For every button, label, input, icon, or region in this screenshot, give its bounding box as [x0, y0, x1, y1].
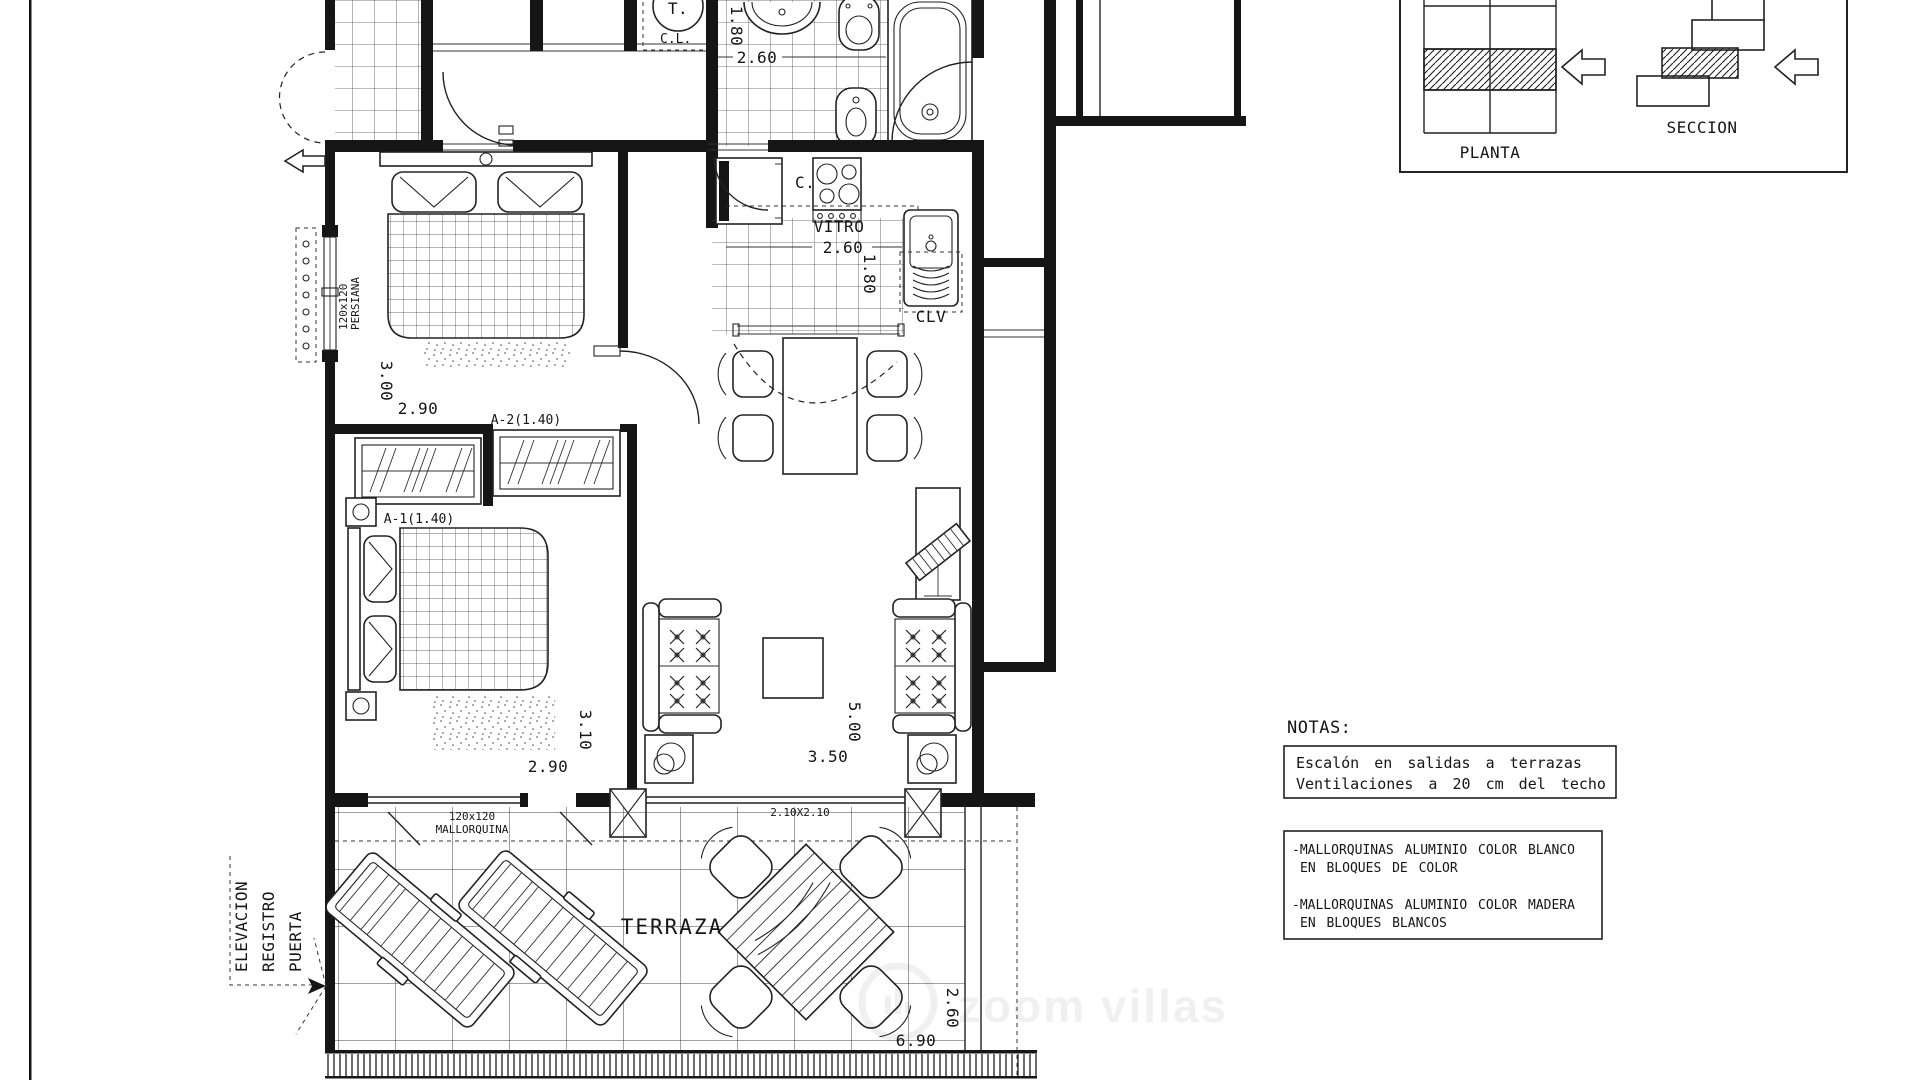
sofa-icon	[893, 599, 971, 733]
wardrobe-a2-label: A-2(1.40)	[491, 413, 561, 428]
watermark-text: zoom villas	[958, 980, 1228, 1032]
tv-console-icon	[906, 488, 970, 600]
wardrobe-a1-label: A-1(1.40)	[384, 512, 454, 527]
dim-living-width: 3.50	[808, 747, 849, 766]
dining-set-icon	[718, 338, 922, 474]
dim-kitchen-width: 2.60	[823, 238, 864, 257]
legend-box: PLANTA SECCION	[1400, 0, 1847, 172]
side-table-lamp-icon	[908, 735, 956, 783]
entry-tiles	[335, 0, 421, 146]
bed2-icon	[348, 528, 548, 690]
notas-title: NOTAS:	[1287, 718, 1351, 738]
bedroom1-rug	[422, 340, 570, 368]
dim-kitchen-height: 1.80	[860, 254, 879, 295]
persiana-label-type: PERSIANA	[349, 277, 362, 330]
notas-section: NOTAS: Escalón en salidas a terrazas Ven…	[1284, 718, 1616, 939]
living-window	[646, 797, 905, 803]
railing	[325, 1050, 1037, 1079]
terraza-label: TERRAZA	[621, 915, 724, 939]
elevacion-label-3: PUERTA	[286, 911, 305, 972]
nightstand-icon	[346, 692, 376, 720]
elevacion-label-2: REGISTRO	[259, 891, 278, 972]
leader-arrow-icon	[308, 978, 326, 994]
sofa-icon	[643, 599, 721, 733]
nota-mallorquinas-madera-2: EN BLOQUES BLANCOS	[1300, 916, 1447, 931]
vitro-label: VITRO	[814, 217, 865, 236]
dim-bed1-height: 3.00	[377, 361, 396, 402]
water-heater-closet: T. C.L.	[643, 0, 713, 50]
elevacion-label-1: ELEVACION	[232, 881, 251, 972]
sink-washer-icon	[900, 210, 962, 312]
cl-label: C.L.	[660, 32, 691, 47]
nota-mallorquinas-blanco-2: EN BLOQUES DE COLOR	[1300, 861, 1458, 876]
wardrobe-a1-icon	[355, 438, 481, 504]
toilet-icon	[839, 0, 879, 50]
side-table-lamp-icon	[645, 735, 693, 783]
nota-escalon: Escalón en salidas a terrazas	[1296, 754, 1582, 772]
top-strip: T. C.L.	[335, 0, 718, 152]
floorplan-sheet: T. C.L. 1.80	[0, 0, 1920, 1080]
nota-mallorquinas-madera-1: -MALLORQUINAS ALUMINIO COLOR MADERA	[1292, 898, 1575, 913]
kitchen: C. VITRO 2.60 1.80 CLV	[712, 156, 962, 336]
wardrobes: A-1(1.40) A-2(1.40)	[355, 346, 699, 527]
coffee-table-icon	[763, 638, 823, 698]
dim-bed2-height: 3.10	[576, 710, 595, 751]
clv-label: CLV	[916, 307, 946, 326]
dim-bed1-width: 2.90	[398, 399, 439, 418]
sheet-border-left	[29, 0, 32, 1080]
dim-living-height: 5.00	[845, 702, 864, 743]
hall-door-arc	[620, 351, 699, 424]
dim-bath-width: 2.60	[737, 48, 778, 67]
nota-ventilaciones: Ventilaciones a 20 cm del techo	[1296, 775, 1606, 793]
double-bed-icon	[380, 152, 592, 338]
living-room: 5.00 3.50	[643, 338, 971, 783]
nightstand-icon	[346, 498, 376, 526]
fridge-icon	[716, 158, 782, 224]
persiana-window: 120x120 PERSIANA	[296, 225, 362, 362]
bedroom-2: 3.10 2.90	[346, 498, 595, 776]
seccion-label: SECCION	[1667, 118, 1738, 137]
heater-label: T.	[668, 0, 688, 18]
wardrobe-a2-icon	[493, 430, 620, 496]
registro-callout: ELEVACION REGISTRO PUERTA	[230, 856, 326, 1034]
dim-bath-height: 1.80	[727, 6, 746, 47]
entry-arrow-icon	[285, 150, 325, 172]
nota-mallorquinas-blanco-1: -MALLORQUINAS ALUMINIO COLOR BLANCO	[1292, 843, 1575, 858]
bathtub-icon	[888, 0, 972, 146]
dim-bed2-width: 2.90	[528, 757, 569, 776]
bedroom2-rug	[430, 696, 555, 750]
hob-icon	[813, 158, 861, 222]
planta-label: PLANTA	[1460, 143, 1521, 162]
bedroom-1: 3.00 2.90 120x120 PERSIANA	[296, 152, 592, 418]
registro-door-arc	[280, 52, 325, 143]
bedroom2-window	[368, 797, 520, 803]
bathroom: 1.80 2.60	[718, 0, 972, 150]
